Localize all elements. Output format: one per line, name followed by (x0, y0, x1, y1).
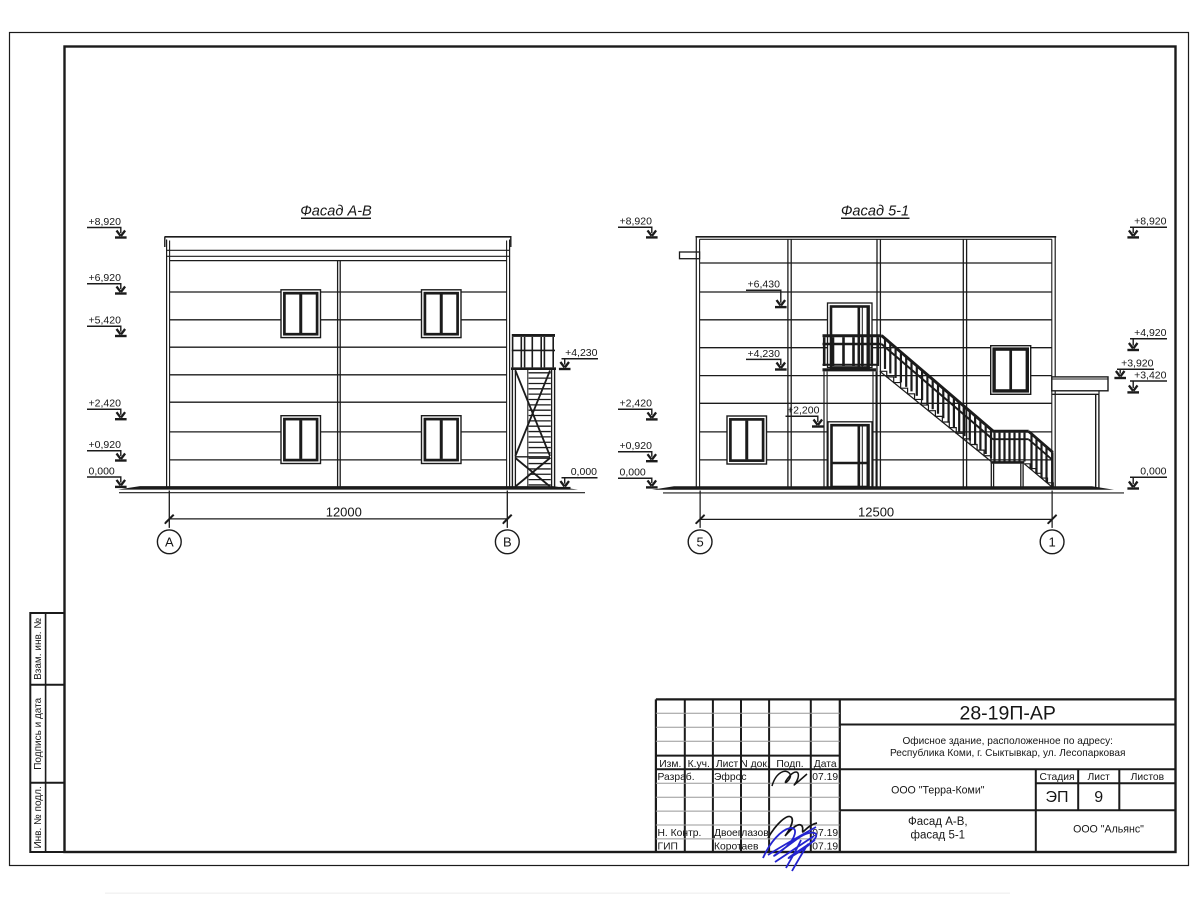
svg-text:12500: 12500 (858, 505, 894, 520)
svg-text:ГИП: ГИП (658, 842, 678, 853)
svg-text:Разраб.: Разраб. (658, 771, 695, 783)
svg-text:0,000: 0,000 (620, 467, 646, 479)
svg-text:+8,920: +8,920 (89, 216, 122, 228)
svg-text:Лист: Лист (1088, 772, 1111, 783)
svg-text:Фасад 5-1: Фасад 5-1 (841, 204, 909, 220)
svg-text:0,000: 0,000 (571, 466, 597, 478)
svg-text:Инв. № подл.: Инв. № подл. (33, 786, 44, 848)
svg-text:+0,920: +0,920 (89, 439, 122, 451)
svg-text:+8,920: +8,920 (1134, 216, 1167, 228)
svg-text:ООО "Альянс": ООО "Альянс" (1073, 824, 1144, 836)
svg-text:ЭП: ЭП (1046, 789, 1069, 806)
svg-text:Офисное здание, расположенное: Офисное здание, расположенное по адресу: (902, 735, 1113, 747)
svg-text:ООО "Терра-Коми": ООО "Терра-Коми" (891, 785, 985, 797)
svg-text:0,000: 0,000 (1140, 466, 1166, 478)
svg-text:+4,230: +4,230 (565, 347, 598, 359)
svg-text:07.19: 07.19 (812, 842, 838, 853)
svg-text:А: А (165, 534, 174, 549)
svg-text:12000: 12000 (326, 505, 362, 520)
svg-text:Эфрос: Эфрос (714, 771, 746, 783)
svg-text:Подп.: Подп. (776, 759, 803, 770)
svg-text:Листов: Листов (1131, 772, 1165, 783)
svg-text:28-19П-АР: 28-19П-АР (959, 703, 1055, 725)
svg-text:07.19: 07.19 (812, 772, 838, 783)
svg-text:К.уч.: К.уч. (688, 759, 710, 770)
svg-text:Коротаев: Коротаев (714, 842, 759, 853)
svg-text:Лист: Лист (716, 759, 739, 770)
svg-text:Изм.: Изм. (659, 759, 681, 770)
svg-text:Стадия: Стадия (1039, 772, 1074, 783)
svg-text:фасад 5-1: фасад 5-1 (911, 830, 966, 842)
svg-text:+4,230: +4,230 (748, 348, 781, 360)
svg-text:+8,920: +8,920 (620, 216, 653, 228)
svg-text:Н. Контр.: Н. Контр. (658, 828, 702, 839)
svg-text:N док.: N док. (740, 759, 769, 770)
svg-text:Фасад А-В: Фасад А-В (300, 204, 372, 220)
svg-text:+3,920: +3,920 (1121, 358, 1154, 370)
svg-text:5: 5 (696, 534, 703, 549)
svg-text:Подпись и дата: Подпись и дата (33, 697, 44, 769)
svg-text:Фасад А-В,: Фасад А-В, (908, 816, 968, 828)
svg-text:+3,420: +3,420 (1134, 369, 1167, 381)
svg-text:В: В (503, 534, 512, 549)
svg-text:+6,430: +6,430 (748, 279, 781, 291)
svg-text:1: 1 (1048, 534, 1055, 549)
svg-text:Взам. инв. №: Взам. инв. № (33, 618, 44, 680)
svg-text:+6,920: +6,920 (89, 272, 122, 284)
svg-text:Дата: Дата (814, 759, 837, 770)
svg-text:Республика Коми, г. Сыктывкар,: Республика Коми, г. Сыктывкар, ул. Лесоп… (890, 747, 1126, 759)
svg-text:0,000: 0,000 (89, 465, 115, 477)
svg-text:+0,920: +0,920 (620, 440, 653, 452)
svg-text:+2,420: +2,420 (89, 398, 122, 410)
svg-text:+4,920: +4,920 (1134, 327, 1167, 339)
svg-text:+5,420: +5,420 (89, 315, 122, 327)
svg-text:Двоеглазов: Двоеглазов (714, 828, 769, 839)
svg-text:+2,420: +2,420 (620, 398, 653, 410)
svg-text:+2,200: +2,200 (787, 405, 820, 417)
svg-text:9: 9 (1094, 789, 1103, 806)
